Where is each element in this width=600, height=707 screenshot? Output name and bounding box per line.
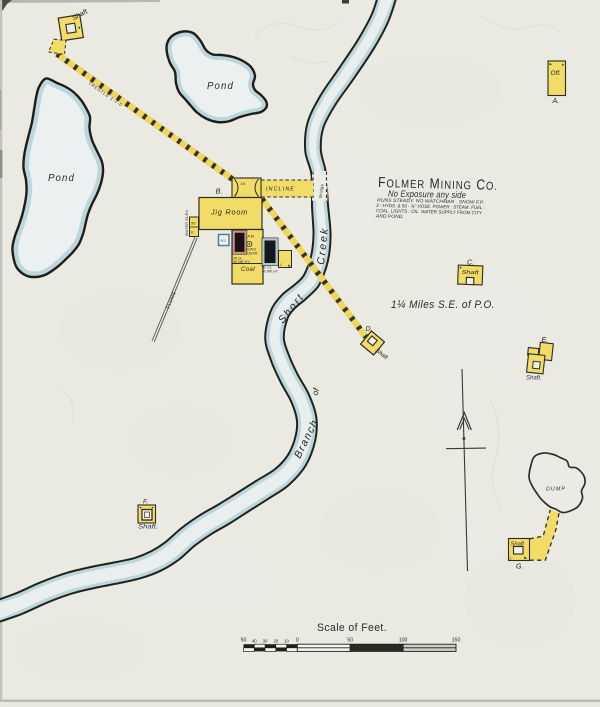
svg-text:G.: G. [516,564,523,571]
svg-text:GEAR: GEAR [248,252,258,256]
svg-text:2: 2 [509,557,512,561]
svg-text:DUMP: DUMP [546,487,566,493]
svg-text:W.C.: W.C. [221,239,228,243]
svg-text:50: 50 [347,638,353,644]
svg-text:10: 10 [284,639,289,644]
svg-text:60 WK.HY.: 60 WK.HY. [234,260,251,264]
svg-text:Shaft.: Shaft. [526,376,542,382]
svg-text:Scale of Feet.: Scale of Feet. [317,622,387,634]
svg-text:50: 50 [191,221,196,226]
svg-text:Shaft.: Shaft. [138,525,158,531]
svg-text:1¼ Miles S.E. of P.O.: 1¼ Miles S.E. of P.O. [391,299,495,311]
svg-text:16: 16 [241,181,246,186]
svg-text:INCLINE: INCLINE [266,187,295,193]
svg-text:Coal: Coal [241,266,255,273]
svg-text:Pond: Pond [207,80,234,92]
svg-text:F.: F. [143,499,148,506]
svg-text:60 WK.HY.: 60 WK.HY. [262,269,279,273]
svg-text:F.P.: F.P. [248,234,255,239]
svg-text:150: 150 [452,638,461,644]
svg-text:Shaft: Shaft [461,270,479,277]
svg-text:Off.: Off. [551,70,561,77]
svg-text:1: 1 [280,263,282,267]
svg-text:100: 100 [399,638,408,644]
svg-text:E:: E: [191,231,194,235]
svg-text:C.: C. [467,260,474,267]
svg-text:50: 50 [241,638,247,644]
svg-text:0: 0 [296,638,299,644]
svg-text:40: 40 [252,639,257,644]
svg-text:AND POND.: AND POND. [375,213,404,219]
svg-text:D.: D. [366,326,373,333]
svg-text:B.: B. [216,187,223,196]
svg-text:Pond: Pond [48,172,75,184]
svg-text:E.: E. [542,337,549,344]
svg-text:20: 20 [273,639,278,644]
svg-text:WATER ELEV.: WATER ELEV. [185,209,189,236]
svg-text:Jig Room: Jig Room [210,208,248,217]
svg-text:30: 30 [263,639,268,644]
svg-text:A.: A. [552,98,560,105]
